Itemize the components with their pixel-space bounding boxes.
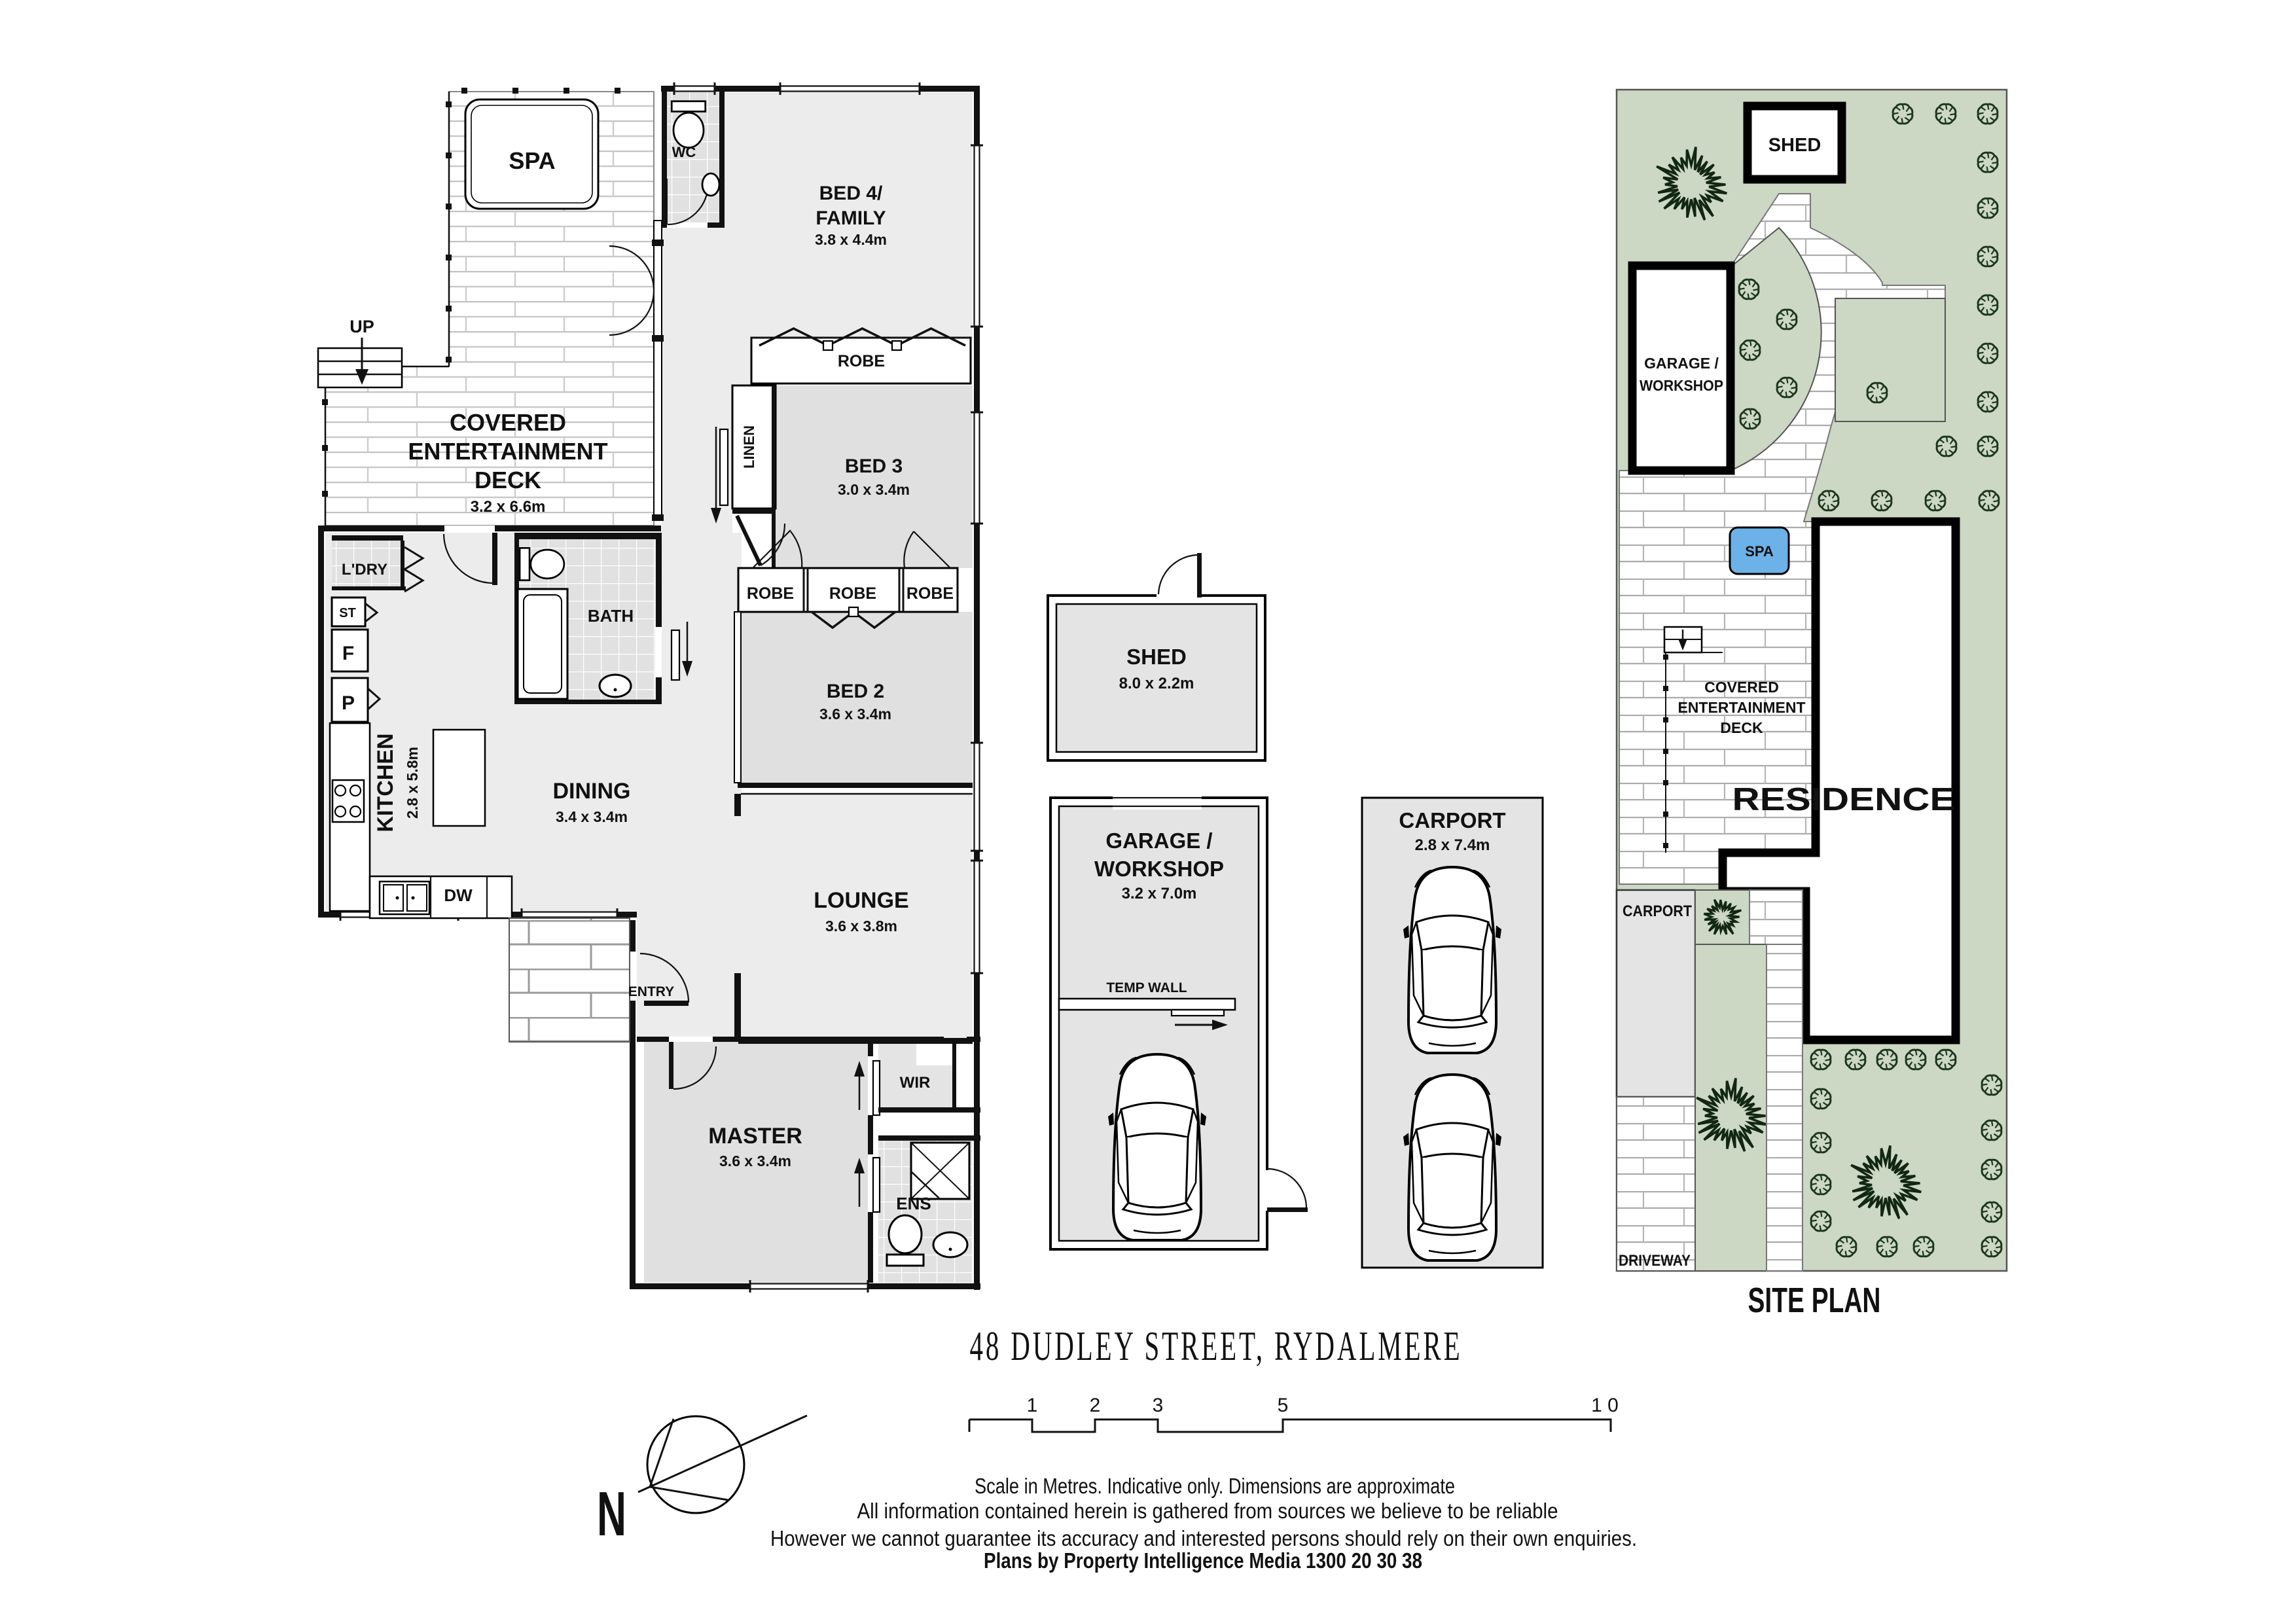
svg-text:F: F	[342, 643, 354, 664]
svg-text:ENTERTAINMENT: ENTERTAINMENT	[1677, 699, 1805, 716]
svg-text:WORKSHOP: WORKSHOP	[1640, 377, 1723, 394]
svg-text:ST: ST	[339, 606, 356, 620]
svg-text:1: 1	[1027, 1395, 1038, 1416]
svg-text:Scale in Metres. Indicative on: Scale in Metres. Indicative only. Dimens…	[975, 1474, 1455, 1498]
svg-text:SHED: SHED	[1768, 135, 1821, 156]
svg-text:ROBE: ROBE	[906, 584, 954, 603]
svg-text:CARPORT: CARPORT	[1399, 808, 1505, 832]
svg-text:BED 4/: BED 4/	[819, 183, 883, 204]
svg-text:COVERED: COVERED	[450, 409, 566, 436]
svg-text:48 DUDLEY STREET, RYDALMERE: 48 DUDLEY STREET, RYDALMERE	[970, 1323, 1463, 1369]
svg-text:ENTERTAINMENT: ENTERTAINMENT	[408, 438, 607, 465]
svg-text:DRIVEWAY: DRIVEWAY	[1619, 1252, 1691, 1270]
svg-text:3.2 x 6.6m: 3.2 x 6.6m	[471, 498, 546, 516]
svg-text:ROBE: ROBE	[747, 584, 794, 603]
svg-text:P: P	[342, 692, 355, 714]
svg-text:However we cannot guarantee it: However we cannot guarantee its accuracy…	[770, 1526, 1637, 1550]
svg-text:SITE PLAN: SITE PLAN	[1748, 1281, 1881, 1320]
svg-text:CARPORT: CARPORT	[1623, 902, 1692, 920]
svg-text:Plans by Property Intelligence: Plans by Property Intelligence Media 130…	[984, 1548, 1422, 1573]
svg-text:GARAGE /: GARAGE /	[1644, 355, 1719, 372]
svg-text:WIR: WIR	[900, 1074, 931, 1092]
svg-text:RESIDENCE: RESIDENCE	[1732, 782, 1956, 817]
svg-text:3.6 x 3.4m: 3.6 x 3.4m	[819, 705, 891, 722]
svg-text:3.8 x 4.4m: 3.8 x 4.4m	[815, 231, 887, 248]
svg-text:N: N	[597, 1479, 626, 1549]
svg-text:SHED: SHED	[1126, 645, 1187, 669]
svg-text:L'DRY: L'DRY	[342, 561, 387, 579]
svg-text:All information contained here: All information contained herein is gath…	[857, 1499, 1558, 1523]
svg-text:ENTRY: ENTRY	[628, 984, 674, 999]
svg-text:3.4 x 3.4m: 3.4 x 3.4m	[556, 808, 628, 825]
svg-text:WC: WC	[672, 144, 696, 160]
svg-text:3.2 x 7.0m: 3.2 x 7.0m	[1122, 885, 1197, 902]
svg-text:LINEN: LINEN	[741, 425, 757, 469]
svg-text:SPA: SPA	[1745, 543, 1774, 560]
svg-text:TEMP WALL: TEMP WALL	[1106, 980, 1187, 995]
svg-text:GARAGE /: GARAGE /	[1105, 829, 1212, 853]
svg-text:2.8 x 7.4m: 2.8 x 7.4m	[1415, 836, 1490, 854]
svg-text:8.0 x 2.2m: 8.0 x 2.2m	[1119, 675, 1194, 692]
svg-text:3.0 x 3.4m: 3.0 x 3.4m	[838, 481, 910, 498]
svg-text:COVERED: COVERED	[1704, 679, 1779, 696]
svg-text:MASTER: MASTER	[708, 1124, 802, 1149]
svg-text:ROBE: ROBE	[829, 584, 876, 603]
svg-text:ROBE: ROBE	[838, 352, 885, 370]
svg-text:3: 3	[1153, 1395, 1164, 1416]
svg-text:2.8 x 5.8m: 2.8 x 5.8m	[404, 747, 421, 819]
svg-text:BATH: BATH	[588, 606, 634, 626]
svg-text:DINING: DINING	[553, 779, 631, 804]
svg-text:1 0: 1 0	[1591, 1395, 1619, 1416]
svg-text:LOUNGE: LOUNGE	[814, 888, 908, 913]
svg-text:KITCHEN: KITCHEN	[373, 733, 398, 832]
svg-text:2: 2	[1090, 1395, 1101, 1416]
svg-text:BED 2: BED 2	[827, 681, 884, 702]
svg-text:SPA: SPA	[509, 147, 555, 174]
svg-text:FAMILY: FAMILY	[816, 207, 886, 229]
svg-text:UP: UP	[350, 317, 374, 336]
svg-text:WORKSHOP: WORKSHOP	[1094, 857, 1224, 881]
svg-text:3.6 x 3.4m: 3.6 x 3.4m	[719, 1152, 791, 1169]
svg-text:DECK: DECK	[1720, 719, 1763, 736]
svg-text:BED 3: BED 3	[845, 455, 903, 477]
svg-text:DECK: DECK	[475, 467, 541, 493]
svg-text:5: 5	[1278, 1395, 1289, 1416]
svg-text:3.6 x 3.8m: 3.6 x 3.8m	[825, 918, 897, 935]
svg-text:ENS: ENS	[896, 1194, 931, 1213]
svg-text:DW: DW	[444, 885, 473, 905]
